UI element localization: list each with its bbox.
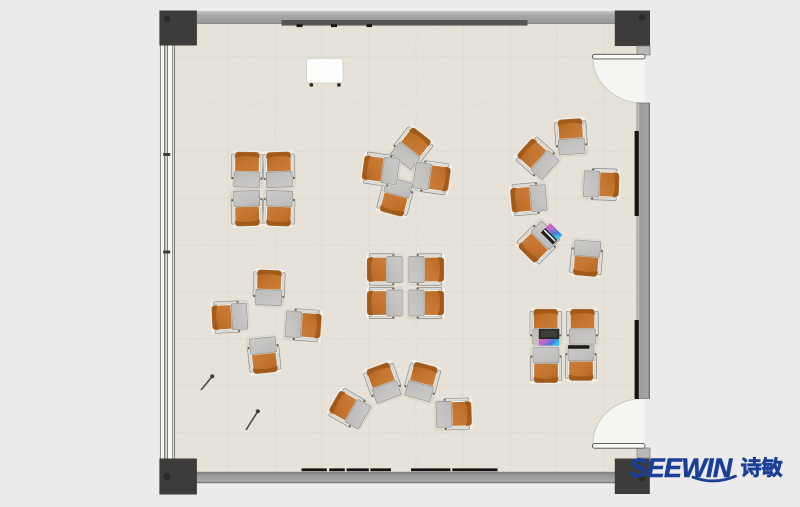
svg-text:SEEWIN: SEEWIN bbox=[630, 453, 733, 483]
